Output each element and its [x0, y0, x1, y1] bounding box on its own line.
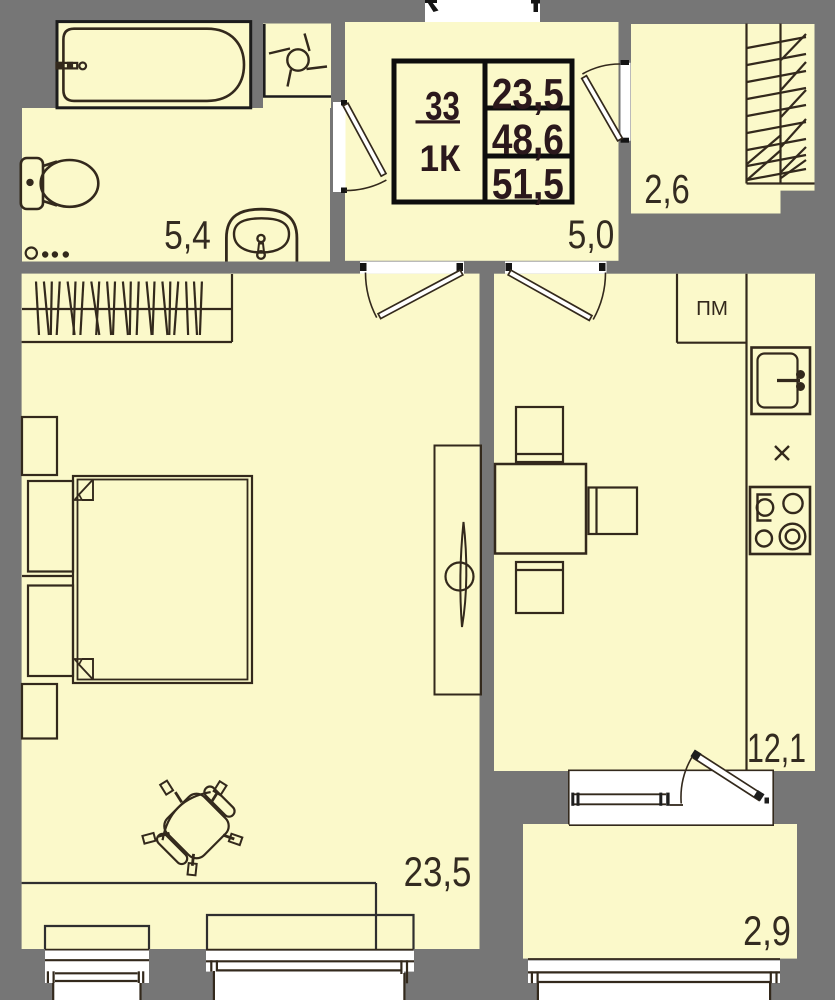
svg-text:1К: 1К	[419, 137, 461, 179]
svg-text:51,5: 51,5	[492, 161, 564, 208]
svg-text:23,5: 23,5	[492, 71, 564, 118]
svg-text:ПМ: ПМ	[696, 297, 728, 320]
svg-text:48,6: 48,6	[492, 117, 564, 164]
svg-text:5,0: 5,0	[568, 212, 615, 256]
svg-text:2,6: 2,6	[644, 167, 690, 212]
svg-text:23,5: 23,5	[404, 849, 472, 896]
svg-text:5,4: 5,4	[164, 213, 211, 257]
svg-text:2,9: 2,9	[743, 908, 791, 955]
svg-text:12,1: 12,1	[747, 726, 806, 771]
